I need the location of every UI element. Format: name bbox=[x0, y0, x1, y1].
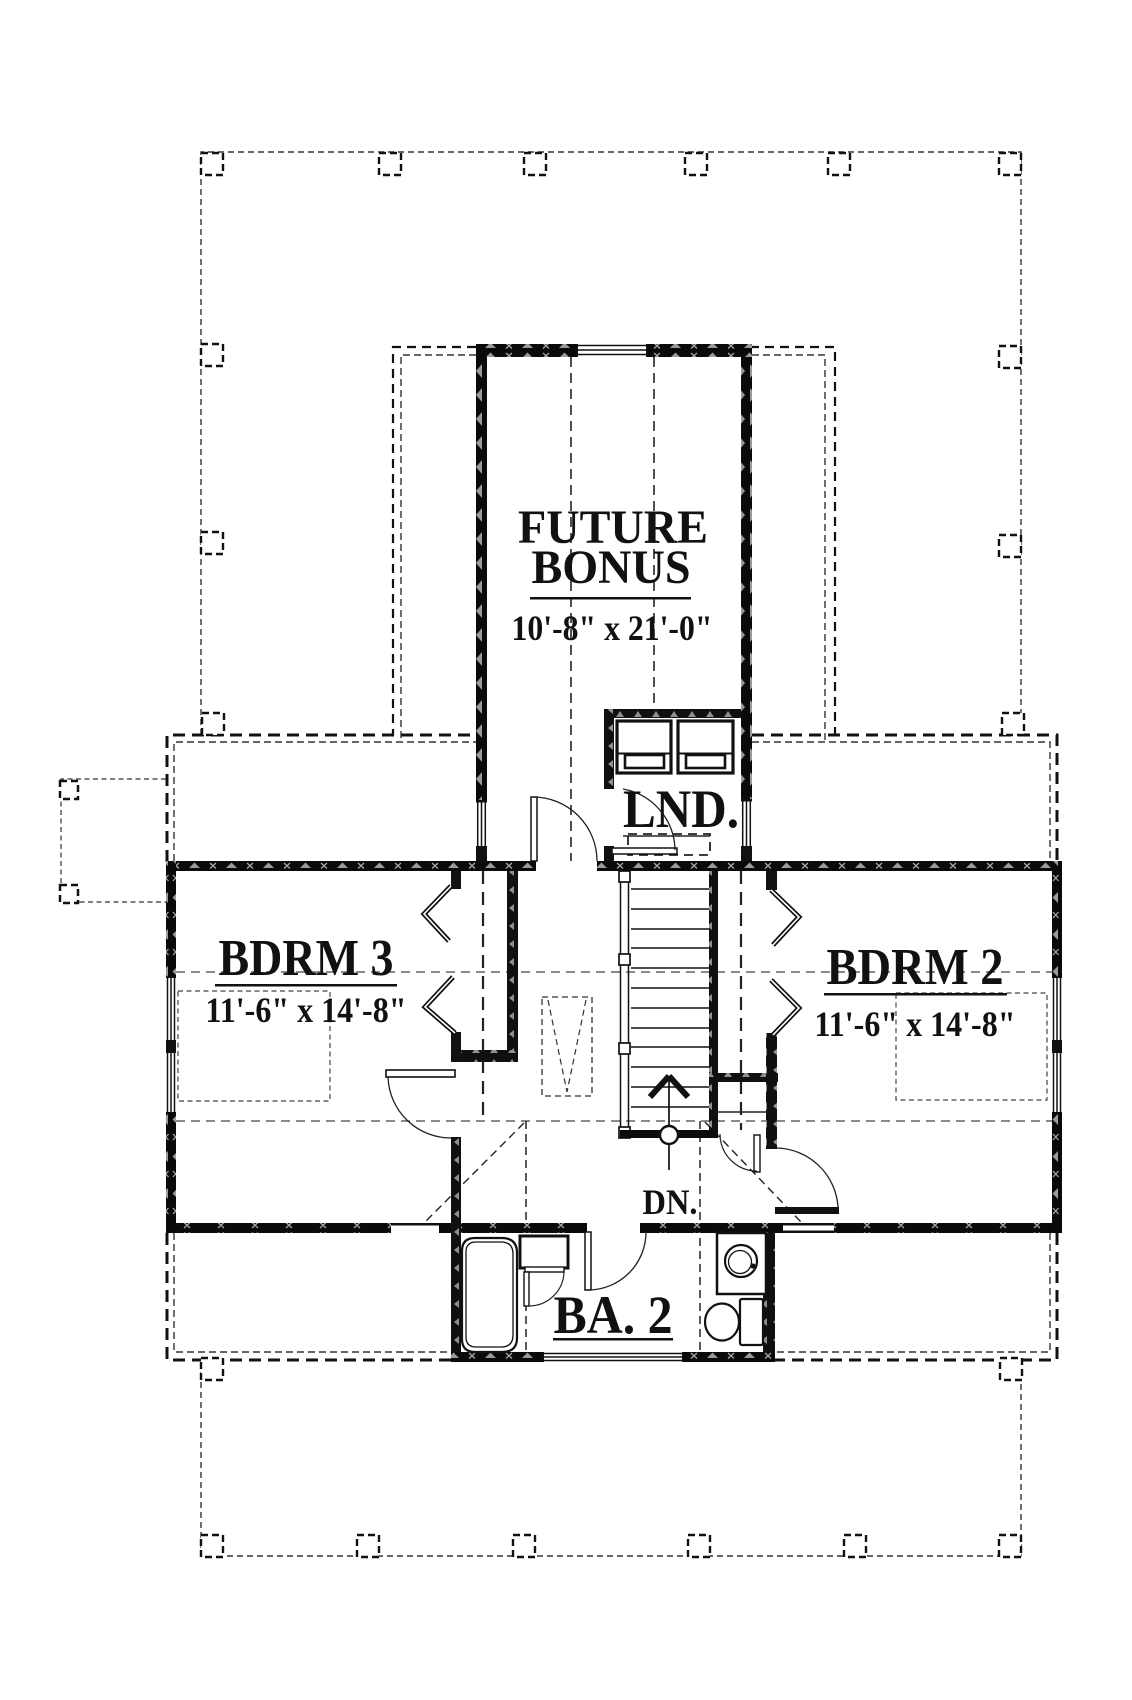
svg-text:BONUS: BONUS bbox=[532, 541, 691, 594]
svg-text:LND.: LND. bbox=[623, 779, 739, 839]
svg-text:10'-8" x 21'-0": 10'-8" x 21'-0" bbox=[512, 608, 713, 648]
svg-text:11'-6" x 14'-8": 11'-6" x 14'-8" bbox=[206, 990, 407, 1030]
svg-text:BDRM 3: BDRM 3 bbox=[219, 930, 394, 987]
svg-text:BA. 2: BA. 2 bbox=[554, 1285, 673, 1345]
svg-text:11'-6" x 14'-8": 11'-6" x 14'-8" bbox=[815, 1004, 1016, 1044]
svg-text:BDRM 2: BDRM 2 bbox=[827, 939, 1004, 996]
svg-text:DN.: DN. bbox=[643, 1182, 698, 1222]
